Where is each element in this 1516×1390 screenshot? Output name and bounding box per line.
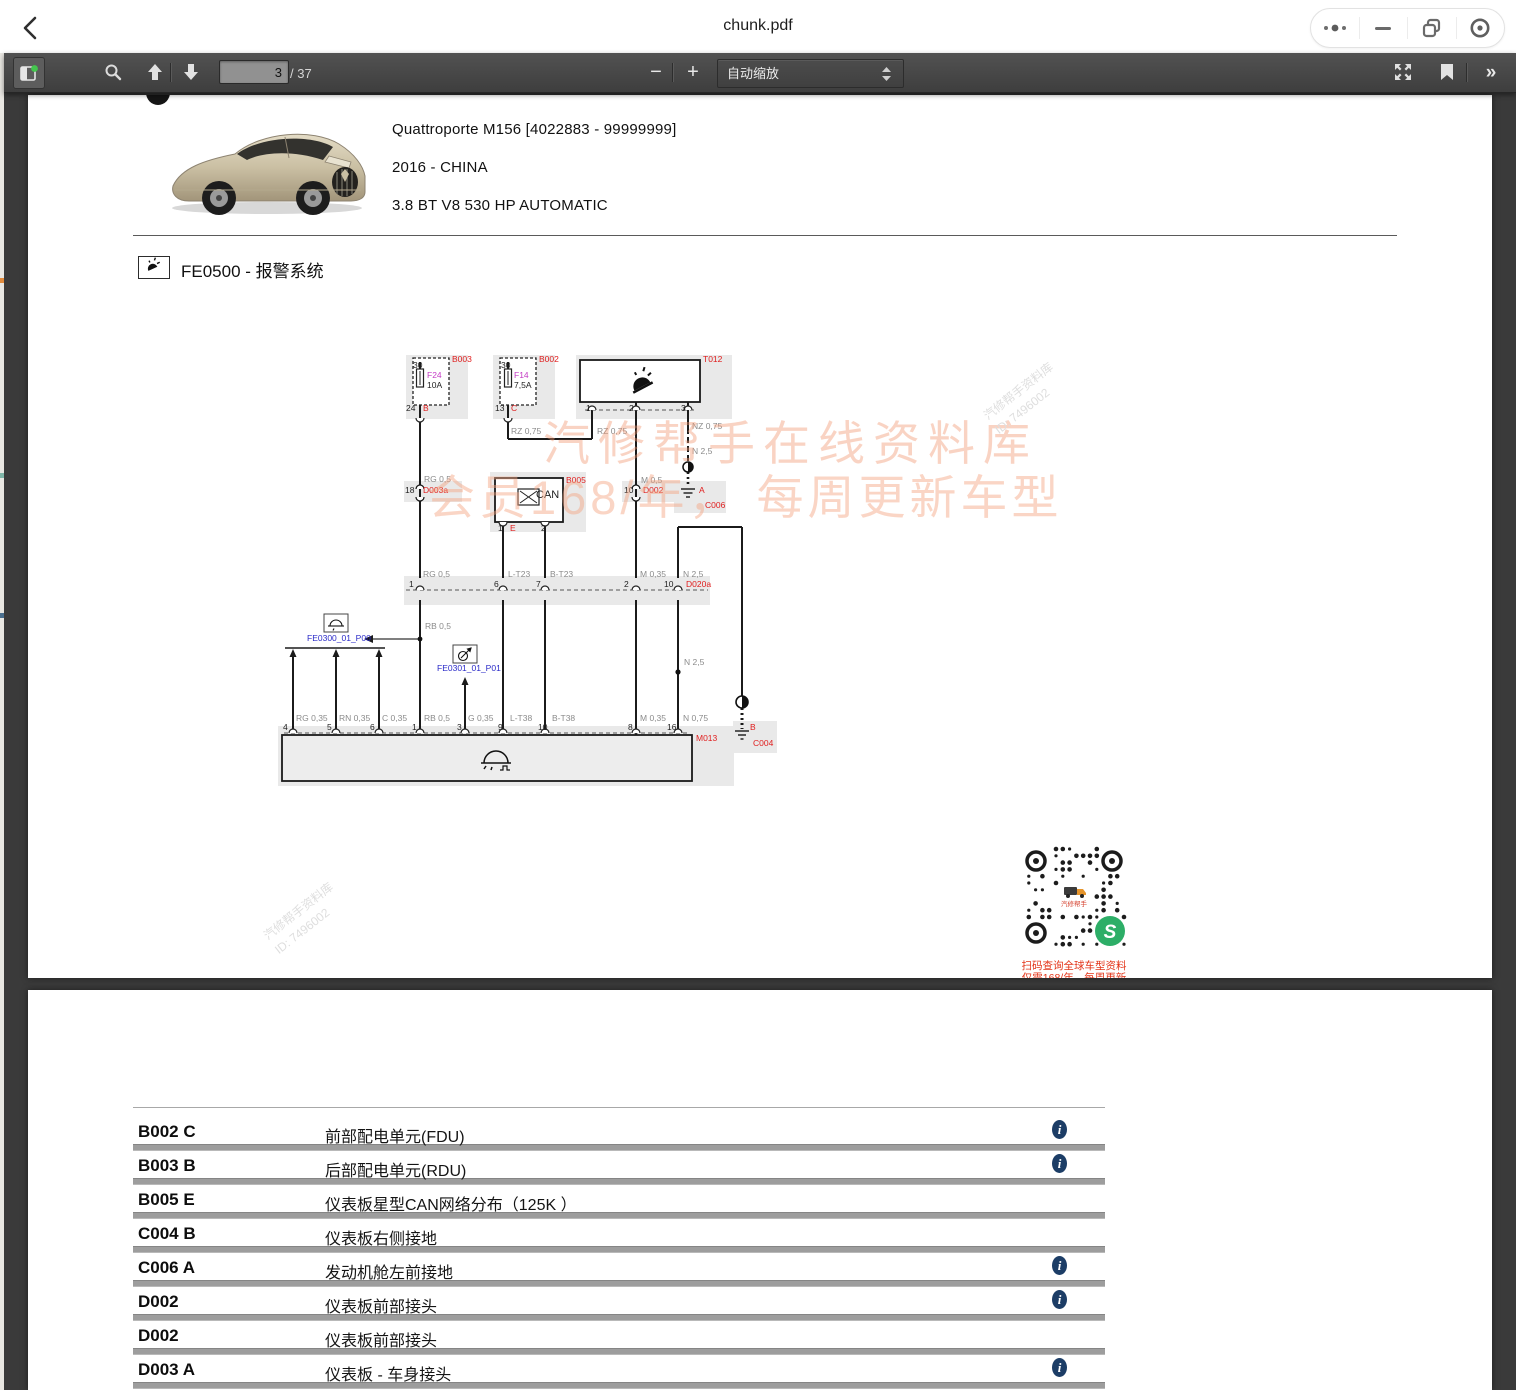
plus-icon: + <box>687 62 699 82</box>
diagram-label: B005 <box>566 476 586 485</box>
restore-icon <box>1422 18 1442 38</box>
svg-text:S: S <box>1104 922 1117 943</box>
diagram-label: D020a <box>686 580 711 589</box>
diagram-label: D003a <box>423 486 448 495</box>
diagram-label: RG 0,5 <box>423 570 450 579</box>
info-icon[interactable]: i <box>1052 1120 1067 1139</box>
search-button[interactable] <box>98 57 128 87</box>
component-code: D002 <box>138 1326 179 1346</box>
table-row: C006 A发动机舱左前接地i <box>133 1253 1105 1280</box>
qr-logo-text: 汽修帮手 <box>1061 899 1088 908</box>
diagram-label: C004 <box>753 739 773 748</box>
diagram-label: 10 <box>624 486 633 495</box>
table-separator <box>133 1348 1105 1355</box>
toolbar-separator <box>1466 63 1467 82</box>
minimize-button[interactable] <box>1360 17 1409 39</box>
diagram-label: N 2,5 <box>692 447 712 456</box>
wiring-diagram <box>28 95 1492 978</box>
pdf-page-1: Quattroporte M156 [4022883 - 99999999] 2… <box>28 95 1492 978</box>
component-description: 仪表板右侧接地 <box>325 1225 437 1249</box>
zoom-select[interactable]: 自动缩放 <box>717 59 904 88</box>
chevron-double-icon: » <box>1486 63 1497 82</box>
diagram-label: RG 0,5 <box>424 475 451 484</box>
diagram-label: M013 <box>696 734 717 743</box>
fullscreen-icon <box>1393 62 1413 82</box>
diagram-label: FE0301_01_P01 <box>437 664 501 673</box>
window-controls <box>1310 8 1505 48</box>
component-code: D003 A <box>138 1360 195 1380</box>
component-table: B002 C前部配电单元(FDU)iB003 B后部配电单元(RDU)iB005… <box>133 1107 1105 1389</box>
diagram-label: 24 <box>406 404 415 413</box>
diagram-label: M 0,5 <box>641 476 662 485</box>
diagram-label: B <box>423 404 429 413</box>
diagram-label: CAN <box>536 490 559 501</box>
diagram-label: 4 <box>283 723 288 732</box>
diagram-label: RN 0,35 <box>339 714 370 723</box>
component-description: 仪表板 - 车身接头 <box>325 1361 451 1385</box>
diagram-label: N 2,5 <box>683 570 703 579</box>
component-code: C006 A <box>138 1258 195 1278</box>
component-description: 后部配电单元(RDU) <box>325 1157 466 1181</box>
arrow-up-icon <box>146 63 164 81</box>
component-code: D002 <box>138 1292 179 1312</box>
qr-caption-1: 扫码查询全球车型资料 <box>1014 960 1134 972</box>
diagram-label: B-T23 <box>550 570 573 579</box>
diagram-label: C 0,35 <box>382 714 407 723</box>
more-options-button[interactable] <box>1311 17 1360 39</box>
record-icon <box>1469 17 1491 39</box>
diagram-label: L-T38 <box>510 714 532 723</box>
diagram-label: FE0300_01_P00 <box>307 634 371 643</box>
info-icon[interactable]: i <box>1052 1358 1067 1377</box>
qr-caption-2: 仅需168/年，每周更新 <box>1014 972 1134 978</box>
qr-code: 汽修帮手 S <box>1016 843 1132 955</box>
pdf-page-2: B002 C前部配电单元(FDU)iB003 B后部配电单元(RDU)iB005… <box>28 990 1492 1390</box>
diagram-label: 13 <box>495 404 504 413</box>
table-separator <box>133 1178 1105 1185</box>
component-code: B003 B <box>138 1156 196 1176</box>
diagram-label: 6 <box>494 580 499 589</box>
diagram-label: B-T38 <box>552 714 575 723</box>
page-count-label: / 37 <box>290 66 312 81</box>
diagram-label: RB 0,5 <box>424 714 450 723</box>
table-row: D003 A仪表板 - 车身接头i <box>133 1355 1105 1382</box>
sidebar-toggle-button[interactable] <box>13 57 45 89</box>
diagram-label: M 0,35 <box>640 714 666 723</box>
diagram-label: RZ 0,75 <box>511 427 541 436</box>
more-tools-button[interactable]: » <box>1476 57 1506 87</box>
table-separator <box>133 1280 1105 1287</box>
diagram-label: 6 <box>370 723 375 732</box>
diagram-label: 1 <box>586 404 591 413</box>
component-code: B005 E <box>138 1190 195 1210</box>
previous-page-button[interactable] <box>140 57 170 87</box>
document-title: chunk.pdf <box>0 17 1516 35</box>
diagram-label: 1 <box>409 580 414 589</box>
table-row: D002仪表板前部接头 <box>133 1321 1105 1348</box>
minus-icon: − <box>650 62 662 82</box>
pdf-viewer-window: chunk.pdf <box>0 0 1516 1390</box>
zoom-out-button[interactable]: − <box>641 57 671 87</box>
diagram-label: 16 <box>667 723 676 732</box>
info-icon[interactable]: i <box>1052 1256 1067 1275</box>
component-description: 前部配电单元(FDU) <box>325 1123 465 1147</box>
diagram-label: F24 <box>427 371 442 380</box>
info-icon[interactable]: i <box>1052 1154 1067 1173</box>
table-separator <box>133 1212 1105 1219</box>
presentation-mode-button[interactable] <box>1388 57 1418 87</box>
restore-button[interactable] <box>1408 17 1457 39</box>
diagram-label: G 0,35 <box>468 714 494 723</box>
diagram-label: 5 <box>327 723 332 732</box>
diagram-label: 7 <box>536 580 541 589</box>
diagram-label: RG 0,35 <box>296 714 328 723</box>
diagram-label: NZ 0,75 <box>692 422 722 431</box>
page-number-input[interactable] <box>219 60 289 84</box>
record-button[interactable] <box>1457 17 1505 39</box>
table-row: B002 C前部配电单元(FDU)i <box>133 1117 1105 1144</box>
qr-block: 汽修帮手 S 扫码查询全球车型资料 仅需168/年，每周更新 <box>1014 843 1134 978</box>
component-description: 仪表板前部接头 <box>325 1293 437 1317</box>
zoom-select-value: 自动缩放 <box>727 66 779 81</box>
diagram-label: 10 <box>664 580 673 589</box>
bookmark-button[interactable] <box>1432 57 1462 87</box>
bookmark-icon <box>1440 63 1454 81</box>
search-icon <box>104 63 122 81</box>
table-separator <box>133 1246 1105 1253</box>
diagram-label: 10 <box>538 723 547 732</box>
component-code: C004 B <box>138 1224 196 1244</box>
diagram-label: 1 <box>498 524 503 533</box>
toolbar-separator <box>672 63 673 82</box>
diagram-label: 2 <box>629 404 634 413</box>
component-description: 仪表板前部接头 <box>325 1327 437 1351</box>
diagram-label: E <box>510 524 516 533</box>
diagram-label: C <box>511 404 517 413</box>
table-row: C004 B仪表板右侧接地 <box>133 1219 1105 1246</box>
zoom-in-button[interactable]: + <box>678 57 708 87</box>
diagram-label: RZ 0,75 <box>597 427 627 436</box>
next-page-button[interactable] <box>176 57 206 87</box>
diagram-label: M 0,35 <box>640 570 666 579</box>
table-row: B005 E仪表板星型CAN网络分布（125K ） <box>133 1185 1105 1212</box>
diagram-label: 30 <box>413 361 422 370</box>
table-row: B003 B后部配电单元(RDU)i <box>133 1151 1105 1178</box>
info-icon[interactable]: i <box>1052 1290 1067 1309</box>
diagram-label: N 2,5 <box>684 658 704 667</box>
diagram-label: 3 <box>457 723 462 732</box>
table-separator <box>133 1144 1105 1151</box>
diagram-label: B <box>750 723 756 732</box>
diagram-label: T012 <box>703 355 722 364</box>
diagram-label: 9 <box>498 723 503 732</box>
diagram-label: N 0,75 <box>683 714 708 723</box>
select-arrows-icon <box>882 67 891 81</box>
diagram-label: C006 <box>705 501 725 510</box>
diagram-label: 7,5A <box>514 381 532 390</box>
diagram-label: B002 <box>539 355 559 364</box>
diagram-label: A <box>699 486 705 495</box>
diagram-label: 8 <box>628 723 633 732</box>
component-description: 发动机舱左前接地 <box>325 1259 453 1283</box>
dots-icon <box>1322 22 1348 34</box>
diagram-label: 3 <box>681 404 686 413</box>
sidebar-icon <box>20 65 38 82</box>
diagram-label: 2 <box>541 524 546 533</box>
diagram-label: 18 <box>405 486 414 495</box>
diagram-label: D002 <box>643 486 663 495</box>
table-separator <box>133 1314 1105 1321</box>
table-separator <box>133 1382 1105 1389</box>
titlebar: chunk.pdf <box>0 0 1516 54</box>
diagram-label: RB 0,5 <box>425 622 451 631</box>
diagram-label: F14 <box>514 371 529 380</box>
component-description: 仪表板星型CAN网络分布（125K ） <box>325 1191 577 1215</box>
pdf-toolbar: / 37 − + 自动缩放 <box>4 53 1516 93</box>
diagram-label: L-T23 <box>508 570 530 579</box>
minimize-icon <box>1374 25 1392 31</box>
diagram-label: 10A <box>427 381 442 390</box>
diagram-label: 30 <box>501 361 510 370</box>
diagram-label: 2 <box>624 580 629 589</box>
arrow-down-icon <box>182 63 200 81</box>
toolbar-separator <box>170 63 171 82</box>
component-code: B002 C <box>138 1122 196 1142</box>
diagram-label: B003 <box>452 355 472 364</box>
diagram-label: 1 <box>412 723 417 732</box>
table-row: D002仪表板前部接头i <box>133 1287 1105 1314</box>
